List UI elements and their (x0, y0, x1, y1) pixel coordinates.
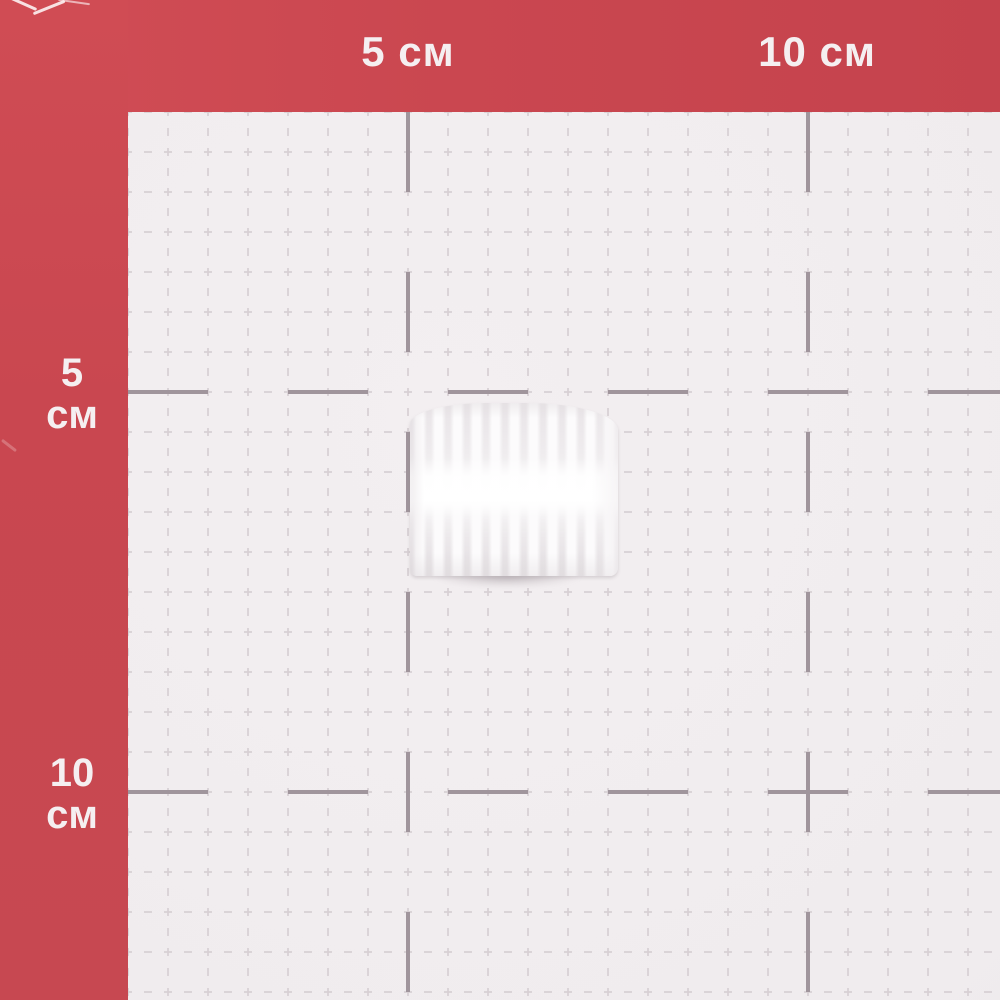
ruler-label-left-10cm: 10 см (36, 752, 108, 836)
white-ribbed-plastic-part (410, 403, 618, 576)
ruler-label-unit: см (38, 394, 106, 436)
ruler-label-top-5cm: 5 см (361, 31, 454, 73)
ruler-label-value: 5 (38, 352, 106, 394)
ruler-label-value: 10 (36, 752, 108, 794)
mat-red-border-left (0, 0, 128, 1000)
object-highlight-sheen (410, 403, 618, 576)
ruler-label-unit: см (36, 794, 108, 836)
ruler-label-top-10cm: 10 см (758, 31, 876, 73)
product-photo-canvas: 5 см 10 см 5 см 10 см (0, 0, 1000, 1000)
ruler-label-left-5cm: 5 см (38, 352, 106, 436)
